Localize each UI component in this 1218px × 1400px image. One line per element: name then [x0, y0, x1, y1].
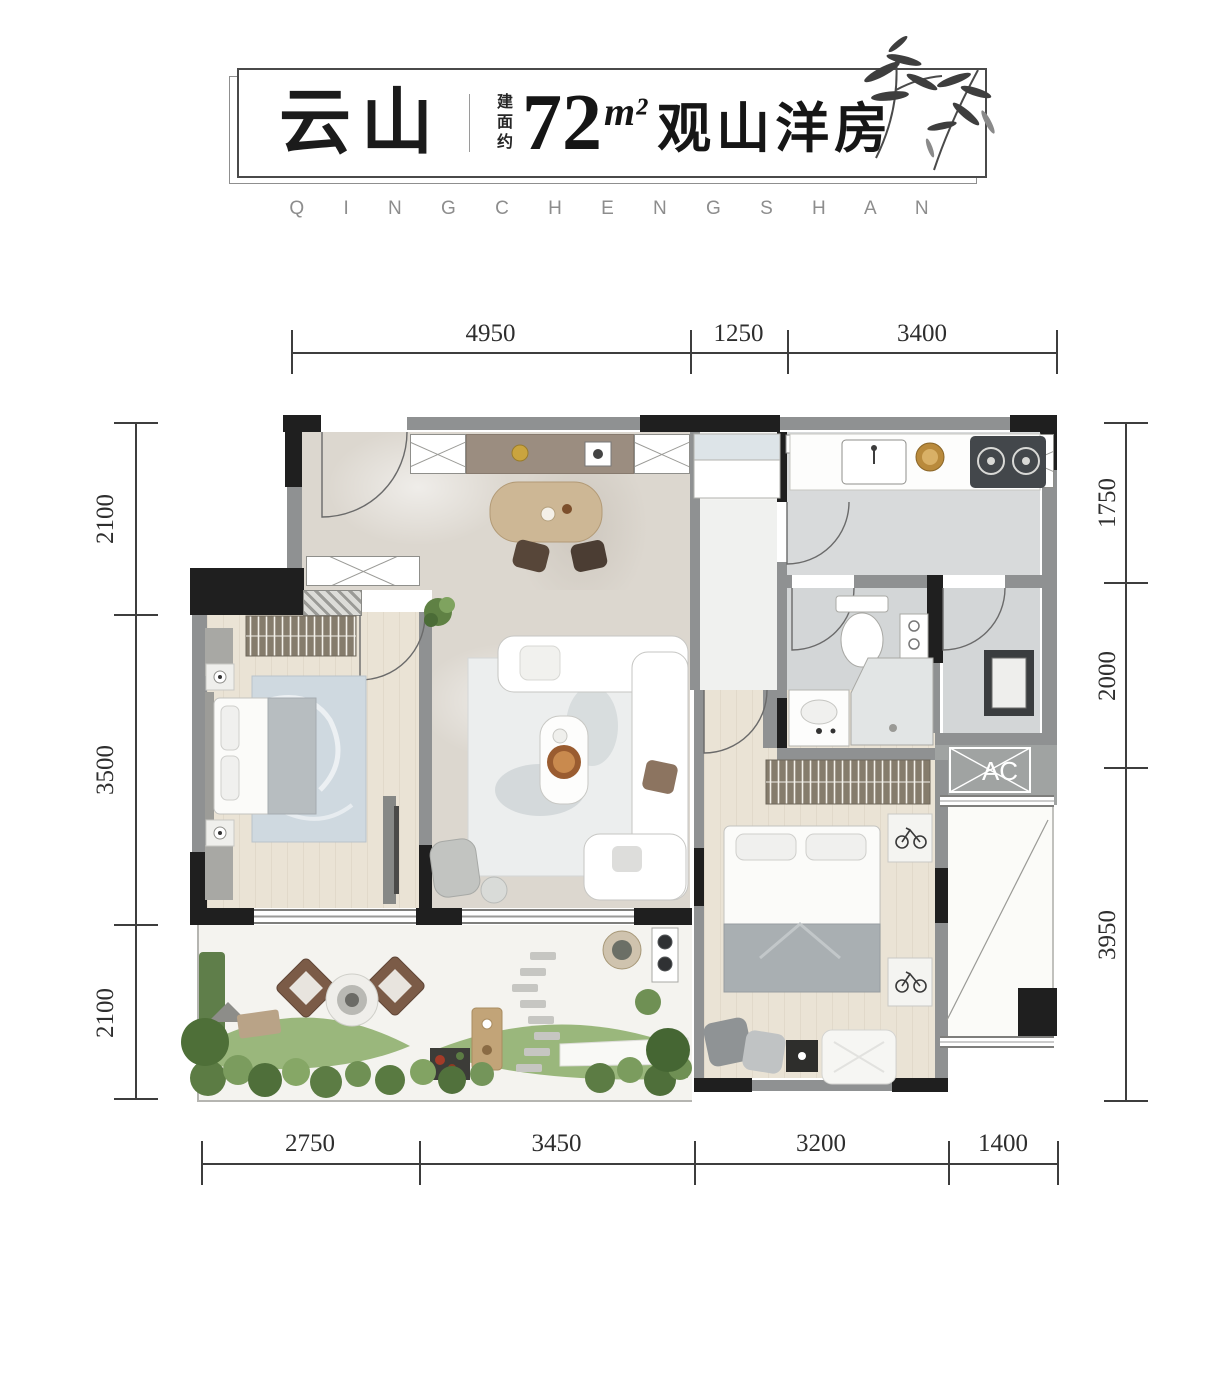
armchair: [428, 837, 481, 899]
living-room-furniture: [428, 636, 688, 903]
furniture-layer: AC: [0, 0, 1218, 1400]
tv: [394, 806, 399, 894]
utility-fixtures: [984, 650, 1034, 716]
dining-chair: [511, 538, 551, 573]
pillow: [221, 756, 239, 800]
balcony-marks: [947, 820, 1048, 1020]
dining-chair: [569, 539, 608, 573]
area-unit: m²: [604, 88, 647, 135]
floorplan-page: 云山 建面约 72 m² 观山洋房 Q I N G: [0, 0, 1218, 1400]
kitchen-door: [787, 502, 849, 564]
pillow: [806, 834, 866, 860]
entry-door: [322, 432, 407, 517]
pillow: [221, 706, 239, 750]
pillow: [612, 846, 642, 872]
utility-door: [943, 588, 1005, 650]
closet-panel: [205, 845, 233, 900]
garden-table: [472, 1008, 502, 1070]
toilet: [836, 596, 888, 612]
area-prefix-label: 建面约: [490, 93, 514, 153]
master-bedroom-door: [360, 615, 425, 680]
area-value: 72: [522, 89, 602, 157]
second-bedroom-furniture: [702, 760, 932, 1084]
ac-unit: AC: [950, 748, 1030, 792]
dining-set: [424, 482, 609, 627]
headboard: [205, 692, 214, 820]
bathroom-fixtures: [789, 596, 933, 746]
ac-label: AC: [982, 756, 1018, 786]
side-table: [481, 877, 507, 903]
floor-pillow: [741, 1029, 787, 1075]
stove: [970, 436, 1046, 488]
shower-area: [851, 658, 933, 745]
garden-elements: [181, 928, 692, 1098]
logo-text: 云山: [279, 87, 443, 159]
second-bedroom-door: [704, 690, 767, 753]
kitchen-fixtures: [694, 434, 1046, 498]
pillow: [736, 834, 796, 860]
bamboo-decoration-icon: [838, 30, 1028, 190]
master-bedroom-furniture: [205, 616, 399, 904]
header-divider: [469, 94, 470, 152]
